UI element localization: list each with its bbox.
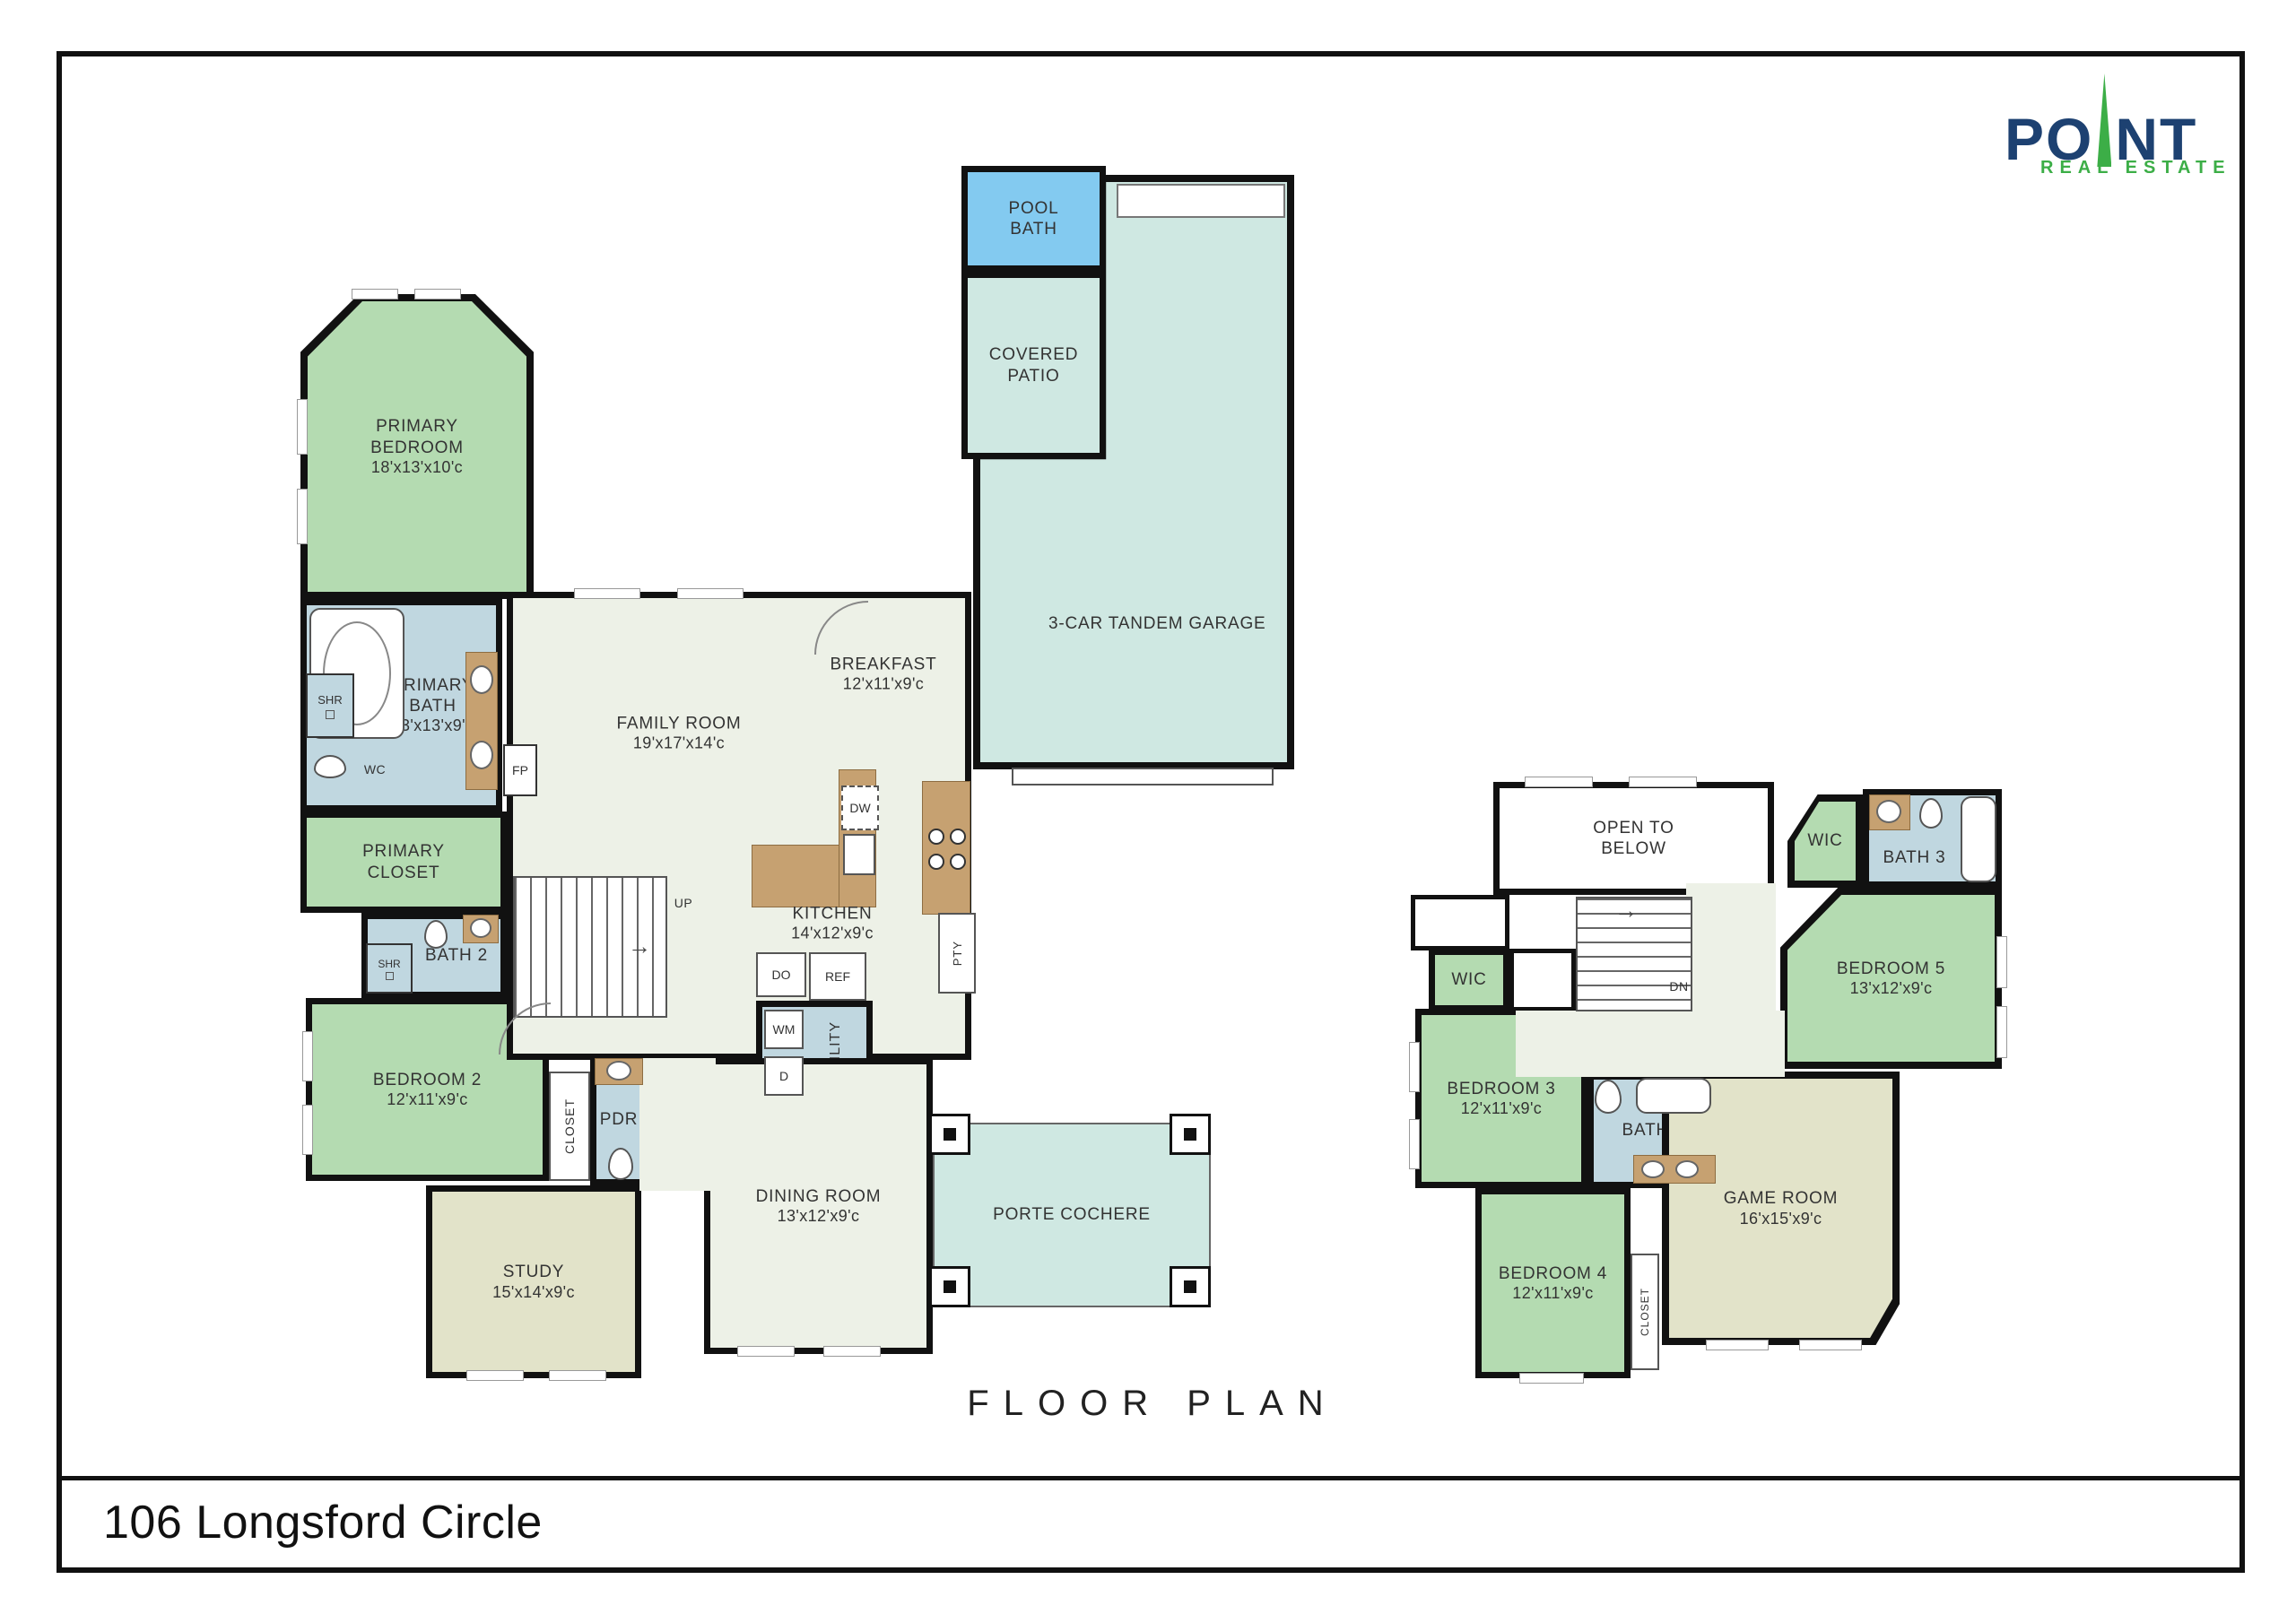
- shower-label: SHR: [317, 693, 342, 707]
- room-dining: DINING ROOM 13'x12'x9'c: [704, 1058, 933, 1354]
- dishwasher: DW: [841, 785, 879, 830]
- stairs-arrow-icon: →: [1614, 897, 1638, 924]
- window: [302, 1105, 313, 1155]
- shower: SHR: [366, 943, 413, 994]
- room-label: PORTE COCHERE: [993, 1204, 1151, 1225]
- hallway: [639, 1058, 716, 1191]
- room-label: COVERED PATIO: [985, 344, 1083, 386]
- room-label: OPEN TO BELOW: [1585, 818, 1683, 859]
- refrigerator: REF: [809, 952, 866, 1001]
- room-label: GAME ROOM: [1724, 1188, 1839, 1209]
- dn-label: DN: [1669, 979, 1688, 994]
- window: [1409, 1042, 1420, 1092]
- room-primary-closet: PRIMARY CLOSET: [300, 811, 507, 913]
- window: [737, 1346, 795, 1357]
- pantry-label: PTY: [951, 941, 964, 966]
- kitchen-sink: [843, 834, 875, 875]
- room-bedroom-5: BEDROOM 5 13'x12'x9'c: [1780, 888, 2002, 1069]
- room-label: WIC: [1807, 830, 1842, 851]
- sink: [470, 918, 491, 938]
- washing-machine: WM: [764, 1010, 804, 1049]
- window: [352, 289, 398, 299]
- sink: [1641, 1160, 1665, 1178]
- oven-label: DO: [772, 968, 791, 982]
- bathtub: [1636, 1078, 1711, 1114]
- garage-door-bottom: [1012, 768, 1274, 785]
- room-dims: 13'x12'x9'c: [778, 1207, 860, 1226]
- room-dims: 18'x13'x10'c: [371, 458, 463, 477]
- room-dims: 13'x12'x9'c: [1850, 979, 1933, 998]
- shower: SHR: [306, 673, 354, 738]
- window: [1996, 1006, 2007, 1058]
- room-label: BEDROOM 3: [1447, 1079, 1555, 1099]
- closet-label: CLOSET: [1639, 1288, 1651, 1336]
- double-oven: DO: [756, 952, 806, 997]
- refrigerator-label: REF: [825, 969, 850, 984]
- sink: [1675, 1160, 1699, 1178]
- sink: [606, 1061, 631, 1081]
- sink: [1876, 800, 1901, 823]
- window: [677, 588, 744, 599]
- room-label: DINING ROOM: [756, 1186, 882, 1207]
- dryer-label: D: [779, 1069, 788, 1083]
- shower-drain-icon: [386, 972, 394, 980]
- room-label: PRIMARY BEDROOM: [345, 416, 489, 457]
- window: [414, 289, 461, 299]
- window: [1799, 1340, 1862, 1350]
- breakfast-label: BREAKFAST 12'x11'x9'c: [830, 655, 936, 694]
- room-dims: 14'x12'x9'c: [791, 924, 874, 943]
- garage-label: 3-CAR TANDEM GARAGE: [1048, 614, 1219, 634]
- dryer: D: [764, 1056, 804, 1096]
- window: [823, 1346, 881, 1357]
- point-logo: PO NT: [2005, 74, 2197, 166]
- address-title: 106 Longsford Circle: [103, 1496, 543, 1549]
- room-label: STUDY: [503, 1262, 564, 1282]
- up-label: UP: [674, 896, 692, 910]
- closet-strip: CLOSET: [1631, 1254, 1659, 1370]
- wc-label: WC: [364, 762, 386, 777]
- window: [549, 1370, 606, 1381]
- room-primary-bedroom: PRIMARY BEDROOM 18'x13'x10'c: [300, 294, 534, 599]
- window: [1706, 1340, 1769, 1350]
- garage-door-top: [1117, 184, 1285, 218]
- toilet: [1919, 798, 1943, 829]
- sink: [470, 665, 493, 694]
- room-bedroom-4: BEDROOM 4 12'x11'x9'c: [1475, 1188, 1631, 1378]
- room-label: POOL BATH: [1003, 198, 1065, 239]
- fireplace: FP: [503, 744, 537, 796]
- spire-icon: [2097, 74, 2111, 167]
- landing: [1411, 895, 1509, 950]
- room-dims: 16'x15'x9'c: [1740, 1210, 1822, 1228]
- post-dot-icon: [1184, 1128, 1196, 1141]
- logo-tagline: REAL ESTATE: [2040, 158, 2231, 178]
- window: [574, 588, 640, 599]
- window: [1519, 1373, 1584, 1384]
- room-label: BEDROOM 2: [373, 1070, 482, 1090]
- stove-burner-icon: [950, 854, 966, 870]
- room-label: BEDROOM 4: [1499, 1263, 1607, 1284]
- family-room-label: FAMILY ROOM 19'x17'x14'c: [616, 715, 741, 753]
- upper-hall: [1516, 1011, 1785, 1077]
- pantry: PTY: [938, 913, 976, 994]
- window: [466, 1370, 524, 1381]
- room-wic-lower: WIC: [1429, 949, 1509, 1011]
- room-label: BREAKFAST: [830, 655, 936, 675]
- closet-strip: CLOSET: [549, 1072, 590, 1181]
- sink: [470, 741, 493, 769]
- post-dot-icon: [1184, 1280, 1196, 1293]
- room-label: WIC: [1451, 969, 1486, 990]
- washer-label: WM: [773, 1022, 796, 1037]
- window: [302, 1031, 313, 1081]
- room-label: BEDROOM 5: [1837, 959, 1945, 979]
- room-label: BATH 3: [1883, 847, 1946, 868]
- room-dims: 15'x14'x9'c: [492, 1283, 575, 1302]
- window: [1996, 936, 2007, 988]
- room-dims: 12'x11'x9'c: [830, 675, 936, 694]
- post-dot-icon: [944, 1280, 956, 1293]
- porte-post: [929, 1114, 970, 1155]
- porte-post: [929, 1266, 970, 1307]
- room-label: FAMILY ROOM: [616, 715, 741, 734]
- stove-burner-icon: [928, 829, 944, 845]
- room-label: KITCHEN: [791, 905, 874, 924]
- toilet: [608, 1148, 633, 1180]
- bathtub: [1961, 796, 1996, 882]
- floor-plan-caption: FLOOR PLAN: [883, 1384, 1422, 1424]
- room-covered-patio: COVERED PATIO: [961, 272, 1106, 459]
- room-dims: 12'x11'x9'c: [387, 1090, 467, 1109]
- window: [297, 399, 308, 455]
- dishwasher-label: DW: [849, 801, 870, 815]
- room-label: PRIMARY CLOSET: [350, 841, 457, 882]
- title-divider-line: [59, 1476, 2242, 1480]
- closet-label: CLOSET: [562, 1098, 577, 1154]
- landing: [1509, 949, 1576, 1011]
- toilet: [424, 920, 448, 949]
- room-label: PDR: [600, 1109, 639, 1130]
- porte-post: [1170, 1266, 1211, 1307]
- stove-burner-icon: [950, 829, 966, 845]
- stove-burner-icon: [928, 854, 944, 870]
- shower-drain-icon: [326, 710, 335, 719]
- stairs-arrow-icon: →: [628, 933, 651, 960]
- window: [297, 489, 308, 544]
- shower-label: SHR: [378, 958, 400, 970]
- window: [1629, 777, 1697, 787]
- porte-post: [1170, 1114, 1211, 1155]
- room-label: 3-CAR TANDEM GARAGE: [1048, 614, 1219, 634]
- room-dims: 12'x11'x9'c: [1512, 1284, 1593, 1303]
- window: [1409, 1119, 1420, 1169]
- toilet: [314, 755, 346, 778]
- room-pool-bath: POOL BATH: [961, 166, 1106, 272]
- room-dims: 19'x17'x14'c: [616, 734, 741, 753]
- toilet: [1595, 1080, 1622, 1114]
- room-dims: 12'x11'x9'c: [1461, 1099, 1542, 1118]
- window: [1525, 777, 1593, 787]
- post-dot-icon: [944, 1128, 956, 1141]
- fireplace-label: FP: [512, 763, 528, 777]
- range-counter: [922, 781, 970, 915]
- kitchen-label: KITCHEN 14'x12'x9'c: [791, 905, 874, 943]
- room-study: STUDY 15'x14'x9'c: [426, 1185, 641, 1378]
- room-open-to-below: OPEN TO BELOW: [1493, 782, 1774, 895]
